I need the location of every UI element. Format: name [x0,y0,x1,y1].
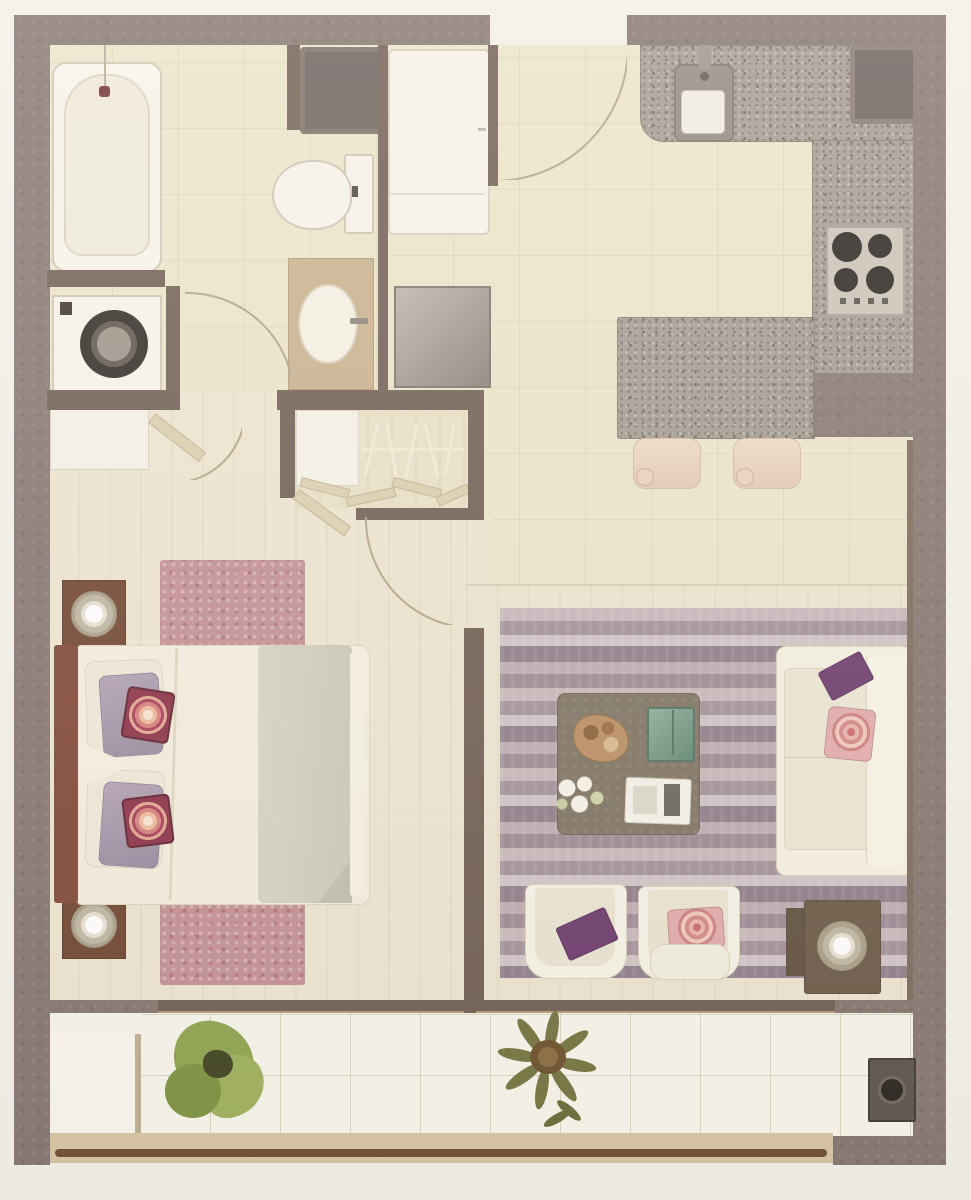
entry-door-arc [492,45,627,180]
wall-closet-right [468,410,484,517]
bathtub-faucet-line [104,45,106,89]
toilet-bowl [272,160,352,230]
kitchen-faucet-knob [700,72,709,81]
bed-blanket [258,645,352,903]
plant-green [165,1020,270,1125]
kitchen-faucet-icon [699,44,711,70]
wall-bathroom-entry-divider [378,45,388,392]
washer-drum-icon [80,310,148,378]
vanity-basin [298,284,358,364]
entry-cabinet-handle-icon [478,128,486,131]
cooktop-burner-icon [832,232,862,262]
wall-bathroom-south-left [47,390,180,410]
entry-tall-cabinet [388,49,490,235]
balcony-drain-hole-icon [878,1076,906,1104]
cooktop-burner-icon [866,266,894,294]
wall-outer-top-left [14,15,490,45]
bathtub-drain-icon [99,86,110,97]
decor-book-pages [633,786,657,814]
breakfast-bar [617,317,815,439]
bed-headboard [54,645,78,903]
floor-plan-page: { "document": { "kind": "apartment-floor… [0,0,971,1200]
vanity-faucet-icon [350,318,368,324]
plant-green-core [203,1050,233,1078]
sofa-pillow-floral [823,706,876,763]
nightstand-lamp-icon [71,591,117,637]
wall-outer-right [913,15,946,1165]
bar-stool-curl-icon [736,468,754,486]
cooktop-knobs [840,298,888,304]
balcony-side-slab [50,1034,135,1136]
plant-olive-leaf [542,1107,572,1130]
bathroom-door-arc [185,292,291,398]
bed-deco-pillow-icon [121,793,175,848]
wall-under-bathtub [47,270,165,287]
wall-closet-left [280,410,295,498]
wall-bedroom-living [464,628,484,1003]
wall-washer-alcove [166,286,180,402]
wall-corner-bottom-right [833,1136,946,1165]
balcony-railing [55,1149,827,1157]
side-table-attach [786,908,806,976]
toilet-button-icon [352,186,358,197]
entry-utility-cabinet [394,286,491,388]
entry-cabinet-divider-line [390,193,484,195]
decor-dark-object [664,784,680,816]
wall-bathroom-south-right [277,390,484,410]
wall-outer-left [14,15,50,1165]
side-table-lamp-icon [817,921,867,971]
closet-shelf [296,410,359,486]
cooktop-burner-icon [868,234,892,258]
decor-green-tray-line [672,710,674,755]
kitchen-wall-step [813,373,913,437]
dresser [50,403,149,470]
wall-living-inner-line [907,440,913,1003]
plant-olive [492,1010,607,1135]
bathtub-basin [64,74,150,256]
sofa-back-cushion [866,654,905,866]
armchair-seat-cushion [650,944,730,980]
floor-plan [0,0,971,1200]
bedroom-door-arc [365,517,473,625]
bed-blanket-edge [350,652,366,897]
washer-control-icon [60,302,72,315]
cooktop-burner-icon [834,268,858,292]
bed-deco-pillow-icon [120,686,176,745]
duct-shaft [300,47,387,134]
decor-green-tray [647,707,695,762]
bar-stool-curl-icon [636,468,654,486]
nightstand-lamp-icon [71,902,117,948]
plant-olive-core [530,1040,566,1074]
floor-transition-line [466,584,913,586]
wall-duct-side [287,45,300,130]
kitchen-sink-basin [681,90,725,134]
decor-flowers-icon [557,776,607,816]
wall-outer-top-right [627,15,946,45]
balcony-slab-divider [135,1034,141,1136]
balcony-curb [50,1133,833,1163]
